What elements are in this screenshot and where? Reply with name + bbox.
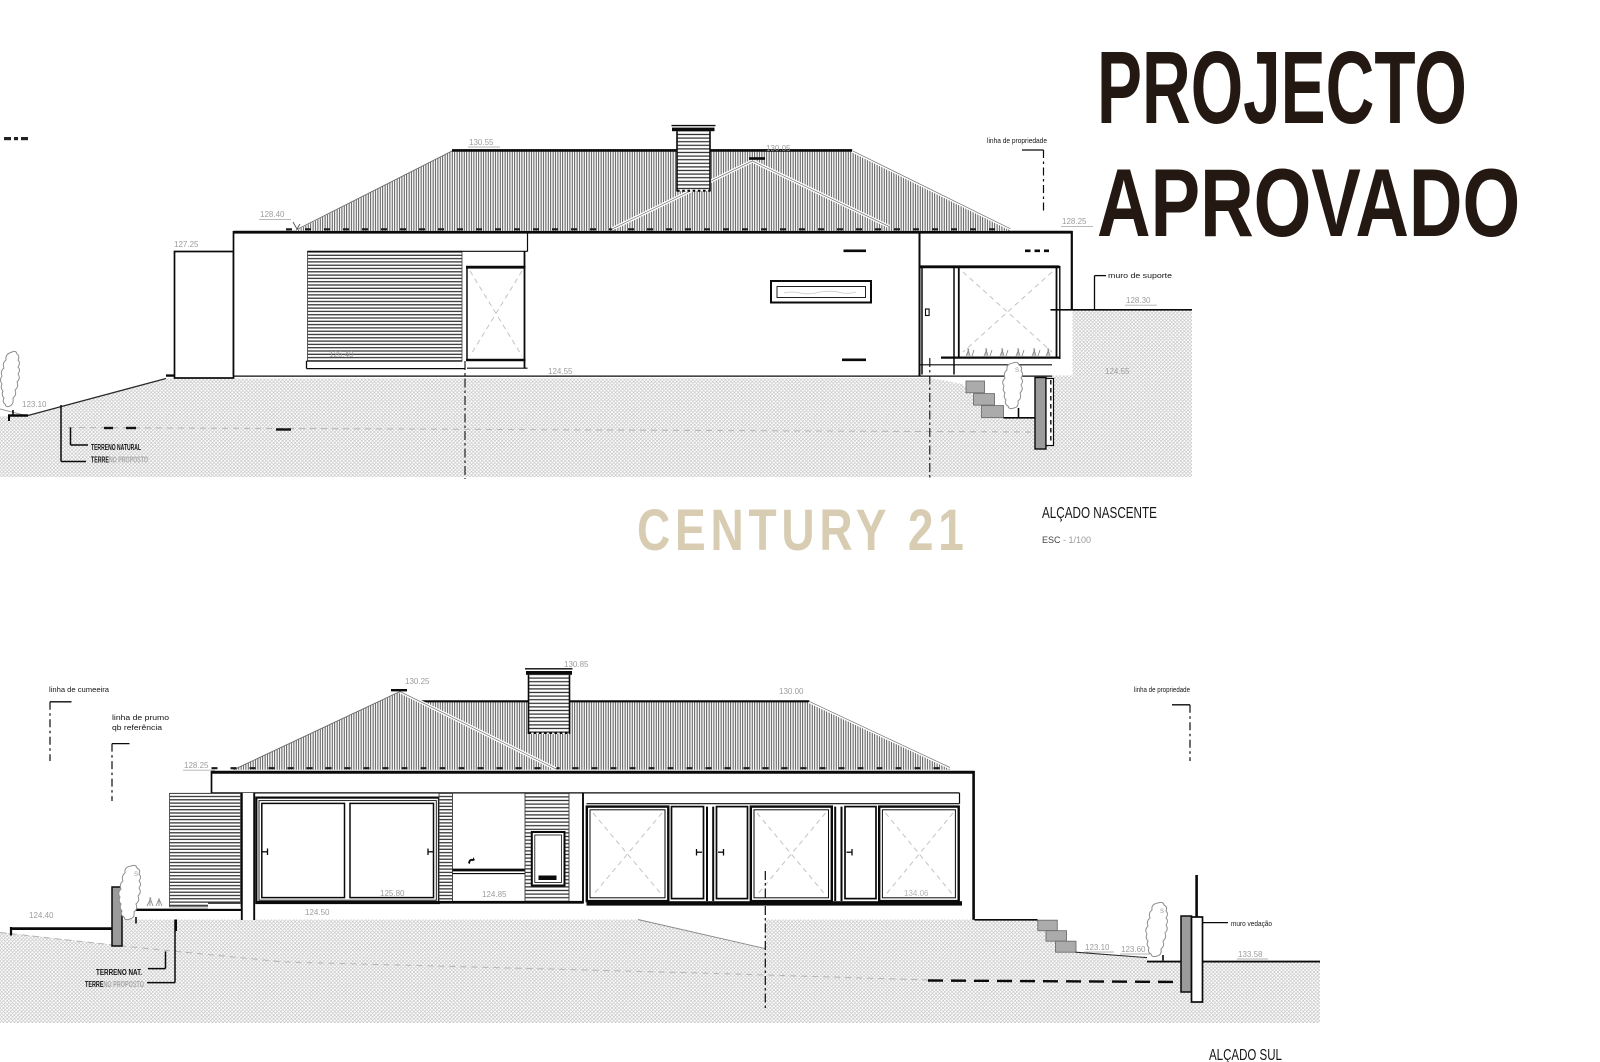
svg-text:S: S (1015, 368, 1019, 374)
svg-text:133.58: 133.58 (1238, 950, 1263, 959)
svg-text:ESC - 1/100: ESC - 1/100 (1042, 535, 1091, 545)
svg-text:130.25: 130.25 (405, 677, 430, 686)
svg-text:128.30: 128.30 (1126, 296, 1151, 305)
svg-text:TERRENO NAT.: TERRENO NAT. (96, 968, 142, 977)
svg-text:127.25: 127.25 (174, 240, 199, 249)
svg-text:PROJECTO: PROJECTO (1097, 31, 1467, 146)
svg-text:123.10: 123.10 (1085, 943, 1110, 952)
svg-text:130.00: 130.00 (779, 687, 804, 696)
svg-text:muro de suporte: muro de suporte (1108, 271, 1172, 280)
svg-text:130.05: 130.05 (766, 144, 791, 153)
svg-text:134.06: 134.06 (904, 889, 929, 898)
svg-text:linha de cumeeira: linha de cumeeira (49, 685, 110, 694)
svg-text:130.85: 130.85 (564, 660, 589, 669)
svg-text:125.80: 125.80 (380, 889, 405, 898)
svg-text:linha de propriedade: linha de propriedade (987, 136, 1047, 145)
svg-text:130.55: 130.55 (469, 138, 494, 147)
svg-text:128.25: 128.25 (1062, 217, 1087, 226)
svg-text:124.85: 124.85 (482, 890, 507, 899)
svg-text:124.40: 124.40 (29, 911, 54, 920)
svg-text:CENTURY 21: CENTURY 21 (637, 499, 969, 563)
svg-text:128.40: 128.40 (260, 210, 285, 219)
svg-text:S: S (1160, 909, 1164, 915)
svg-text:124.55: 124.55 (548, 367, 573, 376)
svg-text:TERRENO NATURAL: TERRENO NATURAL (91, 443, 141, 452)
svg-text:124.50: 124.50 (305, 908, 330, 917)
svg-text:123.10: 123.10 (22, 400, 47, 409)
svg-text:S: S (134, 872, 138, 878)
svg-text:TERRENO PROPOSTO: TERRENO PROPOSTO (91, 456, 148, 465)
svg-text:qb referência: qb referência (112, 723, 163, 732)
svg-text:linha de prumo: linha de prumo (112, 713, 169, 722)
svg-text:ALÇADO NASCENTE: ALÇADO NASCENTE (1042, 503, 1157, 521)
svg-text:TERRENO PROPOSTO: TERRENO PROPOSTO (85, 980, 144, 989)
svg-text:124.55: 124.55 (1105, 367, 1130, 376)
svg-text:126.40: 126.40 (329, 350, 354, 359)
svg-text:123.60: 123.60 (1121, 945, 1146, 954)
svg-text:linha de propriedade: linha de propriedade (1134, 685, 1190, 694)
svg-text:muro vedação: muro vedação (1231, 919, 1272, 928)
svg-text:128.25: 128.25 (184, 761, 209, 770)
svg-text:APROVADO: APROVADO (1097, 150, 1520, 258)
svg-text:ALÇADO SUL: ALÇADO SUL (1209, 1045, 1282, 1062)
